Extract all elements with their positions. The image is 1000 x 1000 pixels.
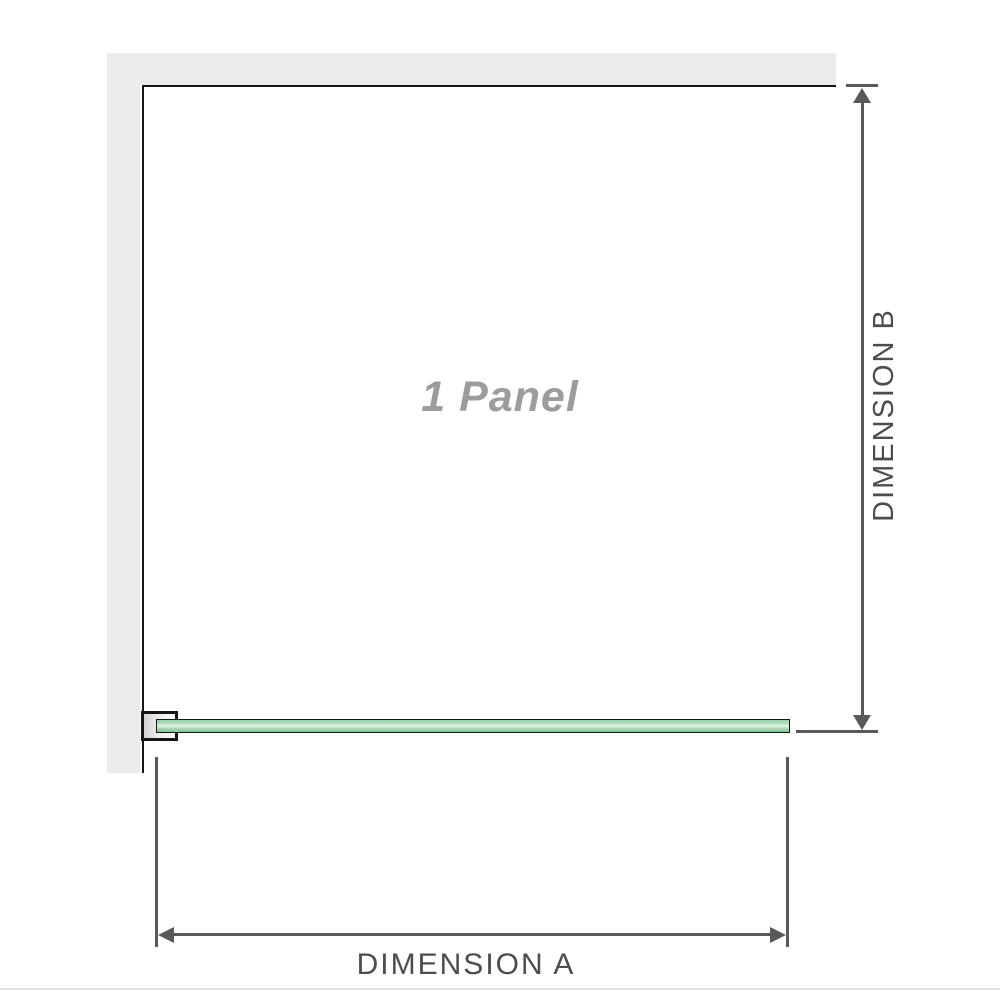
dimension-a-extension-left [155, 757, 158, 947]
dimension-b-line [861, 96, 864, 722]
arrow-up-icon [853, 88, 871, 103]
wall-left [107, 53, 140, 773]
dimension-a-line [170, 933, 774, 936]
arrow-left-icon [158, 927, 174, 943]
panel-count-label: 1 Panel [300, 368, 700, 426]
wall-inner-edge-left [142, 85, 144, 773]
wall-top [107, 53, 836, 85]
dimension-b-tick-top [846, 84, 878, 87]
glass-panel [156, 719, 790, 733]
wall-inner-edge-top [142, 85, 836, 87]
dimension-b-label: DIMENSION B [869, 205, 899, 625]
bottom-separator-line [0, 988, 1000, 990]
dimension-b-tick-bottom [796, 730, 878, 733]
dimension-a-label: DIMENSION A [315, 948, 617, 982]
dimension-a-extension-right [786, 757, 789, 947]
arrow-right-icon [770, 927, 786, 943]
arrow-down-icon [853, 715, 871, 730]
panel-dimension-diagram: 1 Panel DIMENSION B DIMENSION A [0, 0, 1000, 1000]
